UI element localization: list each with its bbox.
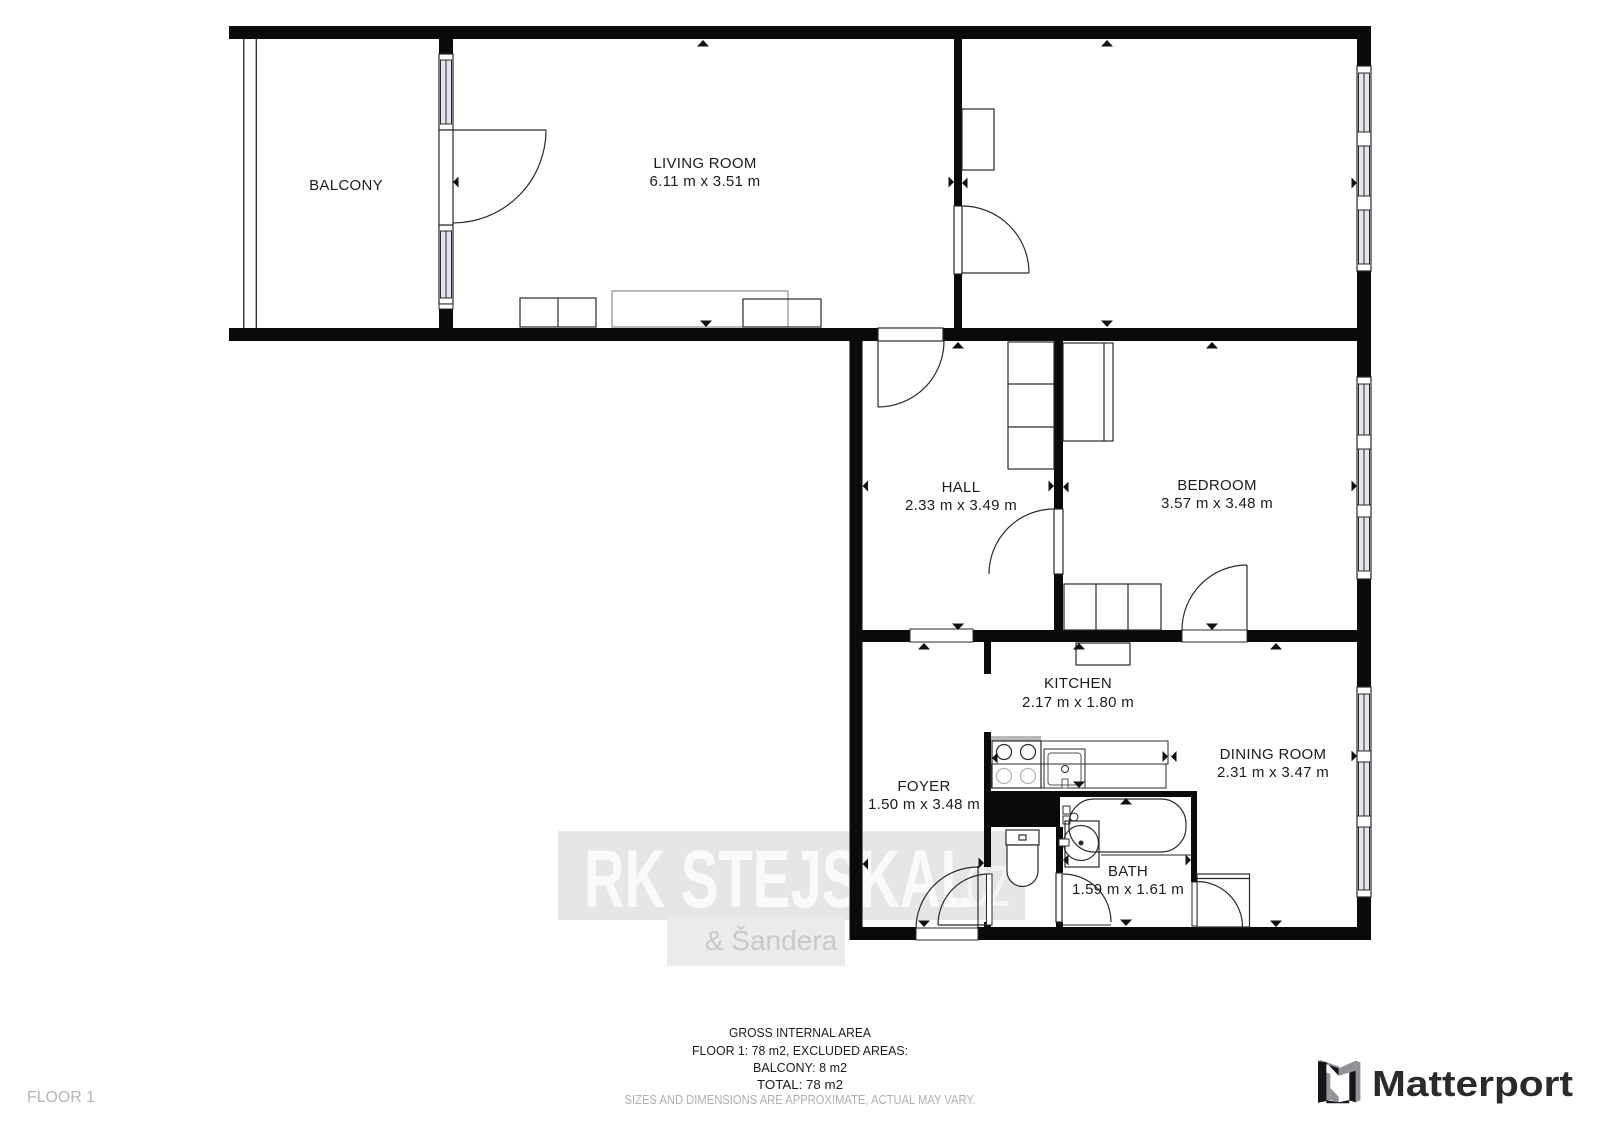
svg-text:1.50 m x 3.48 m: 1.50 m x 3.48 m [868,796,980,813]
svg-text:FLOOR 1: FLOOR 1 [27,1089,95,1106]
svg-text:LIVING ROOM: LIVING ROOM [653,155,756,172]
svg-text:2.31 m x 3.47 m: 2.31 m x 3.47 m [1217,764,1329,781]
svg-text:BALCONY: 8 m2: BALCONY: 8 m2 [753,1060,847,1075]
svg-text:GROSS INTERNAL AREA: GROSS INTERNAL AREA [729,1025,871,1040]
svg-text:BEDROOM: BEDROOM [1177,477,1257,494]
svg-text:.cz: .cz [953,838,1011,923]
svg-text:TOTAL: 78 m2: TOTAL: 78 m2 [757,1077,843,1092]
svg-text:BALCONY: BALCONY [309,177,383,194]
svg-text:HALL: HALL [942,479,981,496]
svg-text:Matterport: Matterport [1372,1063,1573,1104]
svg-text:FOYER: FOYER [897,778,950,795]
svg-text:2.33 m x 3.49 m: 2.33 m x 3.49 m [905,497,1017,514]
svg-text:6.11 m x 3.51 m: 6.11 m x 3.51 m [650,173,761,190]
svg-text:BATH: BATH [1108,863,1148,880]
svg-text:& Šandera: & Šandera [705,925,838,956]
svg-text:FLOOR 1: 78 m2, EXCLUDED AREAS: FLOOR 1: 78 m2, EXCLUDED AREAS: [692,1043,908,1058]
svg-text:RK STEJSKAL: RK STEJSKAL [584,834,975,925]
svg-text:KITCHEN: KITCHEN [1044,675,1112,692]
svg-text:SIZES AND DIMENSIONS ARE APPRO: SIZES AND DIMENSIONS ARE APPROXIMATE, AC… [625,1092,976,1107]
svg-text:1.59 m x 1.61 m: 1.59 m x 1.61 m [1072,881,1184,898]
svg-text:DINING ROOM: DINING ROOM [1220,746,1327,763]
svg-text:2.17 m x 1.80 m: 2.17 m x 1.80 m [1022,694,1134,711]
svg-text:3.57 m x 3.48 m: 3.57 m x 3.48 m [1161,495,1273,512]
